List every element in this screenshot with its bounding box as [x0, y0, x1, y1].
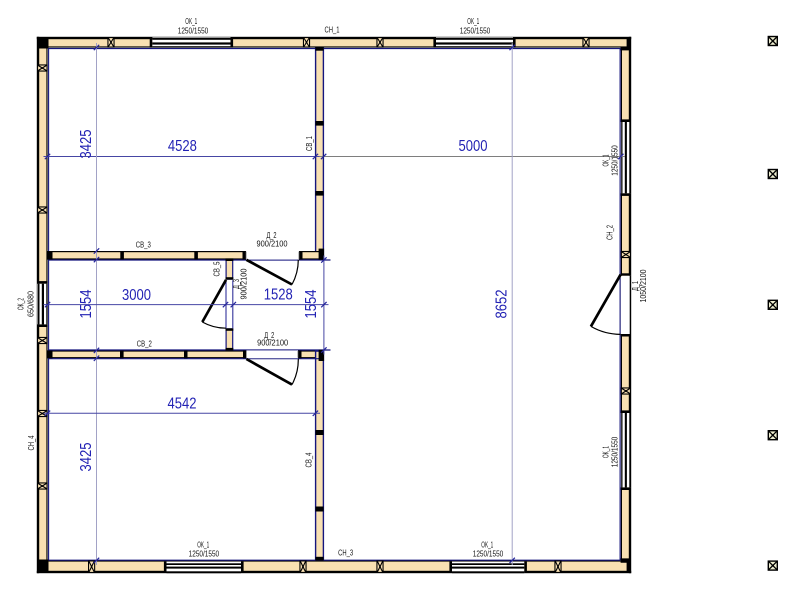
svg-text:OK_1: OK_1: [467, 16, 479, 26]
svg-text:900/2100: 900/2100: [239, 268, 249, 299]
svg-text:1050/2100: 1050/2100: [638, 269, 648, 302]
svg-text:1554: 1554: [78, 289, 95, 318]
svg-text:CB_3: CB_3: [136, 240, 151, 250]
svg-text:1554: 1554: [303, 289, 320, 318]
svg-text:4528: 4528: [168, 138, 197, 155]
svg-text:CB_1: CB_1: [304, 136, 314, 151]
svg-text:8652: 8652: [493, 290, 510, 319]
svg-text:900/2100: 900/2100: [257, 337, 288, 347]
svg-text:1250/1550: 1250/1550: [473, 548, 504, 558]
svg-text:1250/1550: 1250/1550: [610, 437, 620, 468]
svg-text:3425: 3425: [78, 443, 95, 472]
svg-text:900/2100: 900/2100: [257, 239, 288, 249]
svg-text:4542: 4542: [168, 396, 197, 413]
svg-text:650/680: 650/680: [25, 291, 35, 317]
svg-text:1250/1550: 1250/1550: [610, 145, 620, 176]
svg-text:CB_2: CB_2: [137, 338, 152, 348]
svg-text:CH_2: CH_2: [605, 225, 615, 240]
svg-text:1250/1550: 1250/1550: [178, 26, 209, 36]
svg-text:3425: 3425: [78, 130, 95, 159]
svg-text:CB_4: CB_4: [304, 452, 314, 467]
svg-text:5000: 5000: [459, 138, 488, 155]
svg-text:1250/1550: 1250/1550: [460, 26, 491, 36]
svg-text:1250/1550: 1250/1550: [189, 548, 220, 558]
svg-text:OK_2: OK_2: [15, 298, 25, 310]
svg-text:OK_1: OK_1: [185, 16, 197, 26]
svg-text:CH_4: CH_4: [26, 435, 36, 450]
svg-text:CH_3: CH_3: [338, 548, 353, 558]
svg-text:1528: 1528: [264, 287, 293, 304]
svg-text:CB_5: CB_5: [211, 261, 221, 276]
svg-text:CH_1: CH_1: [325, 25, 340, 35]
svg-text:3000: 3000: [122, 287, 151, 304]
